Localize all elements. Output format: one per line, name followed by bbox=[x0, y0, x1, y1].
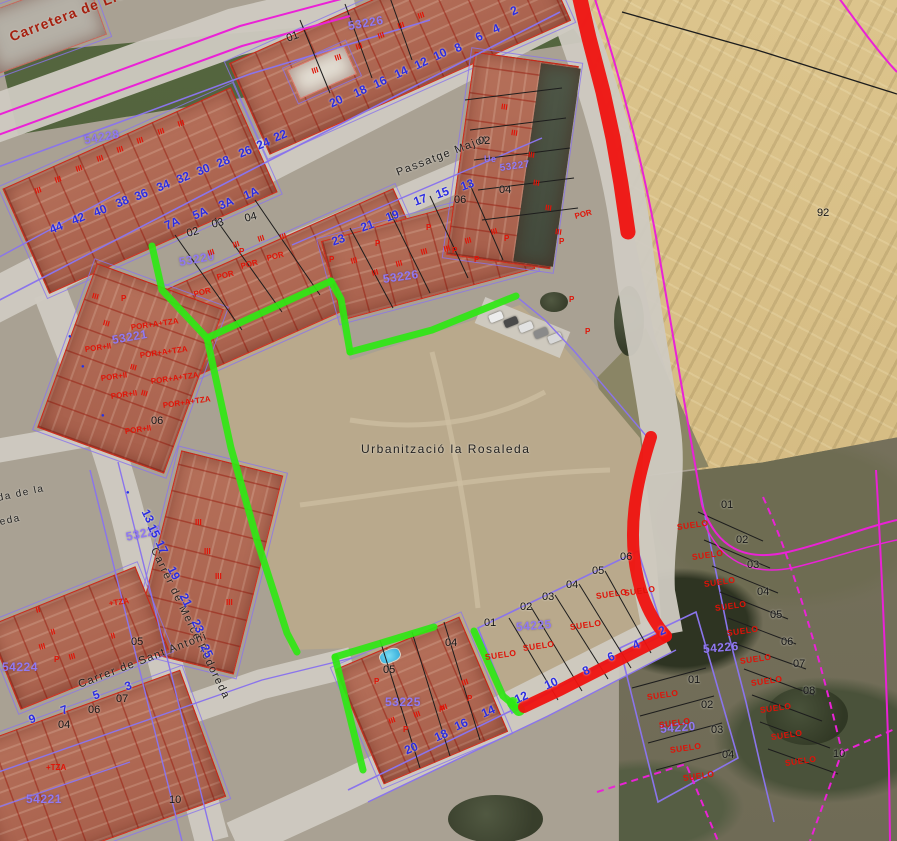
construction-code-label: III bbox=[464, 236, 473, 245]
construction-code-label: III bbox=[420, 247, 429, 256]
parcel-number-label: 01 bbox=[721, 500, 733, 511]
suelo-label: SUELO bbox=[484, 649, 517, 662]
construction-code-label: POR+A+TZA bbox=[139, 345, 188, 360]
parcel-code-label: 53225 bbox=[385, 696, 421, 708]
construction-code-label: III bbox=[311, 66, 320, 76]
parcel-number-label: 02 bbox=[478, 136, 490, 147]
construction-code-label: P bbox=[569, 296, 574, 304]
parcel-number-label: 02 bbox=[520, 602, 532, 613]
parcel-number-label: 01 bbox=[484, 618, 496, 629]
street-number-label: 14 bbox=[392, 64, 409, 81]
parcel-number-label: 03 bbox=[211, 217, 226, 231]
suelo-label: SUELO bbox=[714, 600, 747, 613]
street-number-label: 19 bbox=[166, 564, 183, 581]
parcel-code-label: 53226 bbox=[382, 268, 419, 285]
construction-code-label: III bbox=[204, 548, 211, 556]
street-number-label: 42 bbox=[70, 210, 87, 226]
street-number-label: 28 bbox=[215, 153, 232, 169]
street-number-label: 30 bbox=[195, 161, 212, 177]
suelo-label: SUELO bbox=[646, 689, 679, 702]
construction-code-label: III bbox=[371, 268, 380, 277]
parcel-code-label: 53226 bbox=[347, 14, 384, 32]
construction-code-label: P bbox=[375, 240, 380, 248]
suelo-label: SUELO bbox=[739, 653, 772, 666]
road-name-label: Carretera de Lleida bbox=[7, 0, 148, 44]
parcel-number-label: 04 bbox=[566, 580, 578, 591]
street-number-label: 6 bbox=[473, 30, 484, 44]
construction-code-label: III bbox=[116, 145, 125, 155]
construction-code-label: POR+II bbox=[124, 424, 151, 436]
construction-code-label: III bbox=[91, 292, 100, 301]
parcel-number-label: 06 bbox=[620, 552, 632, 563]
construction-code-label: III bbox=[413, 710, 422, 720]
parcel-code-label: 54224 bbox=[2, 661, 38, 673]
street-number-label: 9 bbox=[27, 712, 37, 726]
construction-code-label: III bbox=[544, 204, 552, 213]
street-number-label: 18 bbox=[351, 83, 368, 100]
construction-code-label: POR+A+TZA bbox=[162, 395, 211, 410]
construction-code-label: III bbox=[500, 103, 508, 112]
street-name-label: Passatge Major bbox=[395, 133, 490, 178]
parcel-number-label: 04 bbox=[757, 587, 769, 598]
construction-code-label: III bbox=[355, 42, 364, 52]
parcel-number-label: 10 bbox=[833, 749, 845, 760]
parcel-code-label: 54225 bbox=[515, 618, 552, 633]
construction-code-label: P bbox=[474, 256, 479, 264]
street-number-label: 6 bbox=[606, 650, 617, 664]
street-name-label: da de la bbox=[0, 484, 46, 504]
parcel-number-label: 07 bbox=[793, 659, 805, 670]
street-number-label: 4 bbox=[490, 22, 501, 36]
construction-code-label: P bbox=[467, 695, 472, 703]
street-number-label: 10 bbox=[543, 675, 560, 691]
street-number-label: 2 bbox=[657, 624, 668, 638]
parcel-number-label: 05 bbox=[770, 610, 782, 621]
suelo-label: SUELO bbox=[770, 729, 803, 742]
parcel-number-label: 04 bbox=[722, 750, 734, 761]
street-number-label: 32 bbox=[175, 169, 192, 185]
parcel-number-label: 05 bbox=[592, 566, 604, 577]
suelo-label: SUELO bbox=[759, 702, 792, 715]
construction-code-label: POR bbox=[574, 209, 593, 221]
street-number-label: 26 bbox=[237, 143, 254, 159]
suelo-label: SUELO bbox=[726, 625, 759, 638]
street-number-label: 3 bbox=[123, 679, 133, 693]
construction-code-label: III bbox=[195, 519, 202, 527]
street-number-label: 5A bbox=[191, 205, 210, 222]
construction-code-label: P bbox=[121, 295, 126, 303]
construction-code-label: +TZA bbox=[108, 597, 129, 608]
construction-code-label: POR bbox=[266, 251, 285, 263]
parcel-number-label: 92 bbox=[817, 208, 829, 219]
construction-code-label: III bbox=[129, 363, 138, 372]
construction-code-label: POR+A+TZA bbox=[130, 317, 179, 332]
construction-code-label: POR+A+TZA bbox=[150, 371, 199, 386]
parcel-number-label: 01 bbox=[285, 30, 300, 45]
street-number-label: 24 bbox=[255, 135, 272, 151]
parcel-number-label: 06 bbox=[454, 195, 466, 206]
construction-code-label: P bbox=[504, 235, 509, 243]
parcel-code-label: 53227 bbox=[499, 160, 530, 174]
cadastral-map[interactable]: Passatge MajorCarrer de Mercè RodoredaCa… bbox=[0, 0, 897, 841]
suelo-label: SUELO bbox=[750, 675, 783, 688]
street-number-label: 40 bbox=[92, 202, 109, 218]
construction-code-label: III bbox=[177, 119, 186, 129]
construction-code-label: II bbox=[50, 628, 56, 637]
label-layer: Passatge MajorCarrer de Mercè RodoredaCa… bbox=[0, 0, 897, 841]
street-number-label: 7A bbox=[163, 215, 182, 232]
construction-code-label: III bbox=[350, 256, 359, 265]
parcel-number-label: 05 bbox=[131, 637, 143, 648]
suelo-label: SUELO bbox=[784, 755, 817, 768]
parcel-number-label: 04 bbox=[244, 211, 259, 225]
construction-code-label: POR+II bbox=[84, 342, 111, 354]
street-number-label: 13 bbox=[459, 177, 476, 193]
construction-code-label: POR bbox=[240, 259, 259, 271]
street-number-label: 20 bbox=[403, 740, 420, 756]
suelo-label: SUELO bbox=[623, 585, 656, 598]
construction-code-label: III bbox=[34, 186, 43, 196]
street-number-label: 38 bbox=[114, 193, 131, 209]
parcel-number-label: 01 bbox=[688, 675, 700, 686]
construction-code-label: III bbox=[257, 234, 266, 244]
parcel-code-label: 54226 bbox=[702, 640, 739, 655]
street-number-label: 22 bbox=[272, 127, 289, 143]
parcel-number-label: 02 bbox=[186, 226, 201, 240]
suelo-label: SUELO bbox=[595, 588, 628, 601]
parcel-number-label: 06 bbox=[151, 416, 163, 427]
street-number-label: 5 bbox=[91, 688, 101, 702]
construction-code-label: III bbox=[75, 164, 84, 174]
parcel-code-label: 54221 bbox=[26, 793, 62, 805]
construction-code-label: III bbox=[377, 31, 386, 41]
construction-code-label: III bbox=[443, 244, 452, 253]
construction-code-label: III bbox=[490, 227, 499, 236]
street-number-label: 4 bbox=[631, 638, 642, 652]
parcel-number-label: 04 bbox=[445, 638, 457, 649]
construction-code-label: POR bbox=[216, 270, 235, 282]
parcel-number-label: 07 bbox=[116, 694, 128, 705]
street-number-label: 17 bbox=[154, 538, 171, 555]
parcel-number-label: 08 bbox=[803, 686, 815, 697]
street-number-label: 14 bbox=[480, 703, 497, 719]
construction-code-label: III bbox=[140, 389, 149, 398]
street-name-label: eda bbox=[0, 514, 22, 528]
parcel-number-label: 06 bbox=[88, 705, 100, 716]
street-number-label: 18 bbox=[433, 727, 450, 743]
street-number-label: 10 bbox=[431, 46, 448, 63]
parcel-code-label: 54228 bbox=[83, 128, 120, 146]
street-number-label: 21 bbox=[178, 591, 195, 608]
suelo-label: SUELO bbox=[703, 576, 736, 589]
street-marker: ● bbox=[68, 334, 72, 340]
construction-code-label: III bbox=[68, 652, 77, 661]
construction-code-label: POR bbox=[193, 287, 212, 299]
street-number-label: 15 bbox=[434, 185, 451, 201]
construction-code-label: P bbox=[585, 328, 590, 336]
construction-code-label: III bbox=[96, 154, 105, 164]
construction-code-label: III bbox=[279, 232, 288, 242]
street-number-label: 20 bbox=[327, 93, 344, 110]
street-number-label: 23 bbox=[330, 232, 347, 248]
street-marker: ● bbox=[101, 413, 105, 419]
construction-code-label: III bbox=[417, 11, 426, 21]
street-number-label: 3A bbox=[217, 195, 236, 212]
street-number-label: 34 bbox=[155, 177, 172, 193]
construction-code-label: P bbox=[54, 656, 59, 664]
street-number-label: 1A bbox=[242, 185, 261, 202]
street-number-label: 21 bbox=[359, 218, 376, 234]
parcel-number-label: 02 bbox=[701, 700, 713, 711]
construction-code-label: III bbox=[532, 179, 540, 188]
construction-code-label: III bbox=[102, 319, 111, 328]
parcel-number-label: 05 bbox=[383, 665, 395, 676]
construction-code-label: III bbox=[554, 228, 562, 237]
construction-code-label: III bbox=[388, 716, 397, 726]
construction-code-label: III bbox=[461, 678, 470, 688]
street-number-label: 17 bbox=[412, 192, 429, 208]
construction-code-label: III bbox=[440, 703, 449, 713]
street-number-label: 16 bbox=[371, 74, 388, 91]
street-number-label: 12 bbox=[513, 689, 530, 705]
construction-code-label: III bbox=[397, 21, 406, 31]
parcel-number-label: 03 bbox=[542, 592, 554, 603]
street-number-label: 19 bbox=[384, 208, 401, 224]
parcel-number-label: 03 bbox=[711, 725, 723, 736]
parcel-code-label: 53221 bbox=[111, 328, 148, 346]
street-number-label: 16 bbox=[453, 716, 470, 732]
construction-code-label: P bbox=[329, 256, 334, 264]
parcel-number-label: 06 bbox=[781, 637, 793, 648]
construction-code-label: POR+II bbox=[100, 371, 127, 383]
street-number-label: 7 bbox=[59, 703, 69, 717]
construction-code-label: III bbox=[38, 642, 47, 651]
construction-code-label: III bbox=[510, 129, 518, 138]
suelo-label: SUELO bbox=[682, 770, 715, 783]
parcel-number-label: 04 bbox=[499, 185, 511, 196]
street-number-label: 8 bbox=[581, 664, 592, 678]
construction-code-label: +TZA bbox=[46, 764, 66, 772]
construction-code-label: II bbox=[35, 606, 41, 615]
suelo-label: SUELO bbox=[569, 619, 602, 632]
suelo-label: SUELO bbox=[669, 742, 702, 755]
construction-code-label: P bbox=[559, 238, 564, 246]
construction-code-label: III bbox=[395, 259, 404, 268]
street-marker: ● bbox=[126, 490, 130, 496]
construction-code-label: III bbox=[527, 151, 535, 160]
construction-code-label: P bbox=[239, 248, 244, 256]
street-marker: ● bbox=[81, 364, 85, 370]
parcel-number-label: 03 bbox=[747, 560, 759, 571]
construction-code-label: II bbox=[110, 632, 116, 641]
construction-code-label: III bbox=[215, 573, 222, 581]
parcel-number-label: 04 bbox=[58, 720, 70, 731]
construction-code-label: POR+II bbox=[110, 389, 137, 401]
parcel-number-label: 10 bbox=[169, 795, 181, 806]
construction-code-label: III bbox=[136, 136, 145, 146]
street-number-label: 44 bbox=[48, 219, 65, 235]
suelo-label: SUELO bbox=[676, 519, 709, 532]
street-name-label: Urbanització la Rosaleda bbox=[361, 443, 530, 455]
construction-code-label: III bbox=[334, 53, 343, 63]
street-number-label: 12 bbox=[412, 55, 429, 72]
parcel-code-label: Ue bbox=[484, 155, 497, 164]
street-number-label: 36 bbox=[133, 186, 150, 202]
suelo-label: SUELO bbox=[522, 640, 555, 653]
construction-code-label: P bbox=[426, 224, 431, 232]
street-number-label: 13 bbox=[140, 507, 157, 524]
street-number-label: 8 bbox=[452, 41, 463, 55]
suelo-label: SUELO bbox=[691, 549, 724, 562]
construction-code-label: P bbox=[403, 726, 408, 734]
construction-code-label: III bbox=[157, 127, 166, 137]
construction-code-label: P bbox=[452, 247, 457, 255]
construction-code-label: III bbox=[226, 599, 233, 607]
parcel-number-label: 02 bbox=[736, 535, 748, 546]
construction-code-label: P bbox=[374, 678, 379, 686]
construction-code-label: III bbox=[54, 175, 63, 185]
street-number-label: 2 bbox=[508, 4, 519, 18]
